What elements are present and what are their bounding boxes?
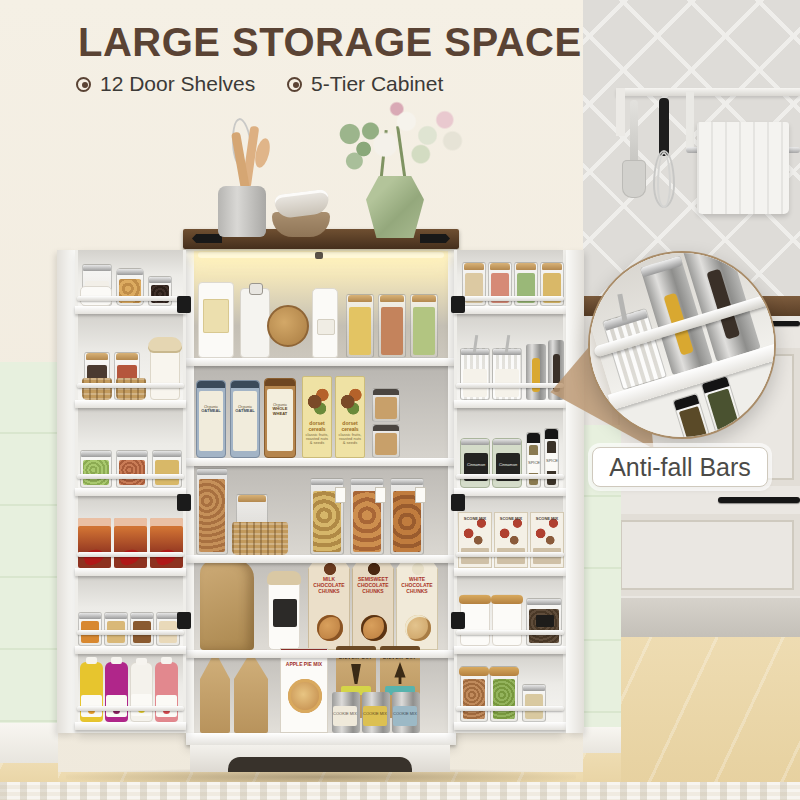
baseboard-gap xyxy=(583,727,621,753)
red-grain-jar xyxy=(116,450,148,488)
food-pouch xyxy=(198,282,234,358)
cinnamon-jar: Cinnamon xyxy=(492,438,522,488)
cookie-image xyxy=(405,615,431,641)
dorset-cereals-box: dorset cereals classic fruits, roasted n… xyxy=(302,376,332,458)
whisk-handle-icon xyxy=(659,98,669,156)
anti-fall-bar xyxy=(77,383,184,388)
scone-mix-box: SCONE MIX xyxy=(530,512,564,568)
spice-jar xyxy=(104,612,128,646)
feature-label: 12 Door Shelves xyxy=(100,72,255,96)
pasta-jar xyxy=(346,294,374,358)
door-shelf-board xyxy=(454,646,566,654)
jar-tag xyxy=(335,487,346,503)
oatmeal-tin: Organic OATMEAL xyxy=(230,380,260,458)
drawer-handle xyxy=(718,497,800,503)
hinge xyxy=(177,296,191,313)
feature-door-shelves: 12 Door Shelves xyxy=(76,72,255,96)
granola-jar xyxy=(310,478,344,555)
plinth-arch-cutout xyxy=(228,757,412,772)
clamp-lid xyxy=(249,283,263,295)
tree-graphic xyxy=(393,662,407,684)
product-marketing-image: LARGE STORAGE SPACE 12 Door Shelves 5-Ti… xyxy=(0,0,800,800)
buckwheat-jar xyxy=(460,666,488,722)
door-shelf-board xyxy=(75,568,186,576)
callout-zoom-circle xyxy=(588,251,776,439)
smoothie-bottle xyxy=(155,662,178,722)
cookie-mix-tin: COOKIE MIX xyxy=(392,692,420,733)
right-door-edge xyxy=(566,250,584,733)
smoothie-bottle xyxy=(105,662,128,722)
door-shelf-board xyxy=(75,722,186,730)
shelf-board xyxy=(186,458,456,466)
rug xyxy=(0,782,800,800)
shelf-board xyxy=(186,650,456,658)
cookie-image xyxy=(317,615,343,641)
right-door-shelf-unit: Cinnamon Cinnamon SPICE SPICE SCONE MIX … xyxy=(454,250,566,733)
towel xyxy=(697,122,789,214)
almond-jar xyxy=(196,468,228,555)
chili-cereal-box xyxy=(78,518,111,568)
left-door-shelf-unit xyxy=(75,250,186,733)
spice-bottle: SPICE xyxy=(544,428,559,488)
vase xyxy=(366,176,424,238)
sugar-dispenser xyxy=(492,348,522,400)
pouch-art xyxy=(203,299,229,333)
round-cutting-board xyxy=(267,305,309,347)
sugar-dispenser xyxy=(460,348,490,400)
wicker-basket xyxy=(232,522,288,555)
white-chocolate-box: WHITE CHOCOLATE CHUNKS xyxy=(396,558,438,650)
stacked-jar xyxy=(372,388,400,422)
chili-cereal-box xyxy=(150,518,183,568)
wood-lid-jar xyxy=(492,594,522,646)
seed-jar xyxy=(522,684,546,722)
cocoa-bean-jar xyxy=(148,276,172,306)
bottle-label xyxy=(317,319,335,335)
pasta-jar xyxy=(410,294,438,358)
spatula-head xyxy=(622,160,646,198)
grain-jar xyxy=(152,450,182,488)
door-shelf-board xyxy=(454,722,566,730)
grain-clamp-jar xyxy=(526,598,562,646)
cookie-image xyxy=(361,615,387,641)
chef-jar xyxy=(268,576,300,650)
corner-bracket-icon xyxy=(192,234,222,243)
bullet-icon xyxy=(287,77,302,92)
wicker-basket xyxy=(82,378,112,400)
jar-black-label xyxy=(273,599,297,627)
semisweet-chocolate-box: SEMISWEET CHOCOLATE CHUNKS xyxy=(352,558,394,650)
hinge xyxy=(451,494,465,511)
hinge xyxy=(451,296,465,313)
pie-image xyxy=(288,679,322,713)
anti-fall-bar xyxy=(77,630,184,635)
milk-chocolate-box: MILK CHOCOLATE CHUNKS xyxy=(308,558,350,650)
hinge xyxy=(177,494,191,511)
left-door-edge xyxy=(57,250,75,733)
chili-cereal-box xyxy=(114,518,147,568)
spatula-icon xyxy=(630,100,638,166)
door-shelf-board xyxy=(75,488,186,496)
cookie-mix-tin: COOKIE MIX xyxy=(362,692,390,733)
door-shelf-board xyxy=(454,306,566,314)
anti-fall-bar xyxy=(456,552,564,557)
stacked-jar xyxy=(372,424,400,458)
burlap-sack xyxy=(200,560,254,650)
shelf-board xyxy=(186,358,456,366)
dorset-cereals-box: dorset cereals classic fruits, roasted n… xyxy=(335,376,365,458)
bullet-icon xyxy=(76,77,91,92)
anti-fall-bar xyxy=(456,296,564,301)
grain-jar xyxy=(378,294,406,358)
anti-fall-bar xyxy=(77,552,184,557)
feature-label: 5-Tier Cabinet xyxy=(311,72,443,96)
shelf-board xyxy=(186,555,456,563)
baseboard-left xyxy=(0,723,58,763)
hinge xyxy=(177,612,191,629)
anti-fall-bar xyxy=(77,296,184,301)
rail-bracket xyxy=(616,88,625,136)
hinge xyxy=(451,612,465,629)
smoothie-bottle xyxy=(80,662,103,722)
oatmeal-tin: Organic OATMEAL xyxy=(196,380,226,458)
utensil-crock xyxy=(218,186,266,237)
callout-label-text: Anti-fall Bars xyxy=(609,453,751,482)
door-shelf-board xyxy=(454,400,566,408)
cabinet-bottom-board xyxy=(186,733,456,745)
whole-wheat-tin: Organic WHOLE WHEAT xyxy=(264,378,296,458)
scone-mix-box: SCONE MIX xyxy=(494,512,528,568)
spice-bottle: SPICE xyxy=(526,432,541,488)
callout-label: Anti-fall Bars xyxy=(592,447,768,487)
green-pea-jar xyxy=(490,666,518,722)
cookie-jar xyxy=(390,478,424,555)
anti-fall-bar xyxy=(456,630,564,635)
door-shelf-board xyxy=(75,400,186,408)
scone-mix-box: SCONE MIX xyxy=(458,512,492,568)
door-shelf-board xyxy=(75,306,186,314)
spice-jar xyxy=(130,612,154,646)
door-knob xyxy=(315,252,323,259)
page-title: LARGE STORAGE SPACE xyxy=(78,20,582,65)
wicker-basket xyxy=(116,378,146,400)
drawer-panel xyxy=(614,514,800,596)
corner-bracket-icon xyxy=(420,234,450,243)
cloth-top-jar xyxy=(150,342,180,400)
anti-fall-bar xyxy=(456,383,564,388)
clamp-canister xyxy=(240,288,270,358)
milk-bottle xyxy=(312,288,338,358)
anti-fall-bar xyxy=(456,706,564,711)
door-shelf-board xyxy=(454,568,566,576)
jar-tag xyxy=(415,487,426,503)
anti-fall-bar xyxy=(77,706,184,711)
towel-bracket xyxy=(686,92,694,152)
utensil-rail xyxy=(616,88,800,96)
smoothie-bottle xyxy=(130,662,153,722)
cup-graphic xyxy=(349,664,363,684)
cinnamon-jar: Cinnamon xyxy=(460,438,490,488)
door-shelf-board xyxy=(454,488,566,496)
mint-wall-left xyxy=(0,362,58,723)
apple-pie-mix-box: APPLE PIE MIX xyxy=(280,648,328,733)
anti-fall-bar xyxy=(456,474,564,479)
steel-canister xyxy=(526,344,546,400)
anti-fall-bar xyxy=(77,474,184,479)
feature-tier-cabinet: 5-Tier Cabinet xyxy=(287,72,443,96)
cookie-jar xyxy=(350,478,384,555)
jar-tag xyxy=(375,487,386,503)
flower-bouquet xyxy=(368,98,464,176)
cookie-mix-tin: COOKIE MIX xyxy=(332,692,360,733)
callout-zoom-content xyxy=(588,251,776,439)
door-shelf-board xyxy=(75,646,186,654)
spice-jar xyxy=(78,612,102,646)
cloth-top xyxy=(267,571,301,585)
jar-black-label xyxy=(536,615,554,627)
split-pea-jar xyxy=(80,450,112,488)
